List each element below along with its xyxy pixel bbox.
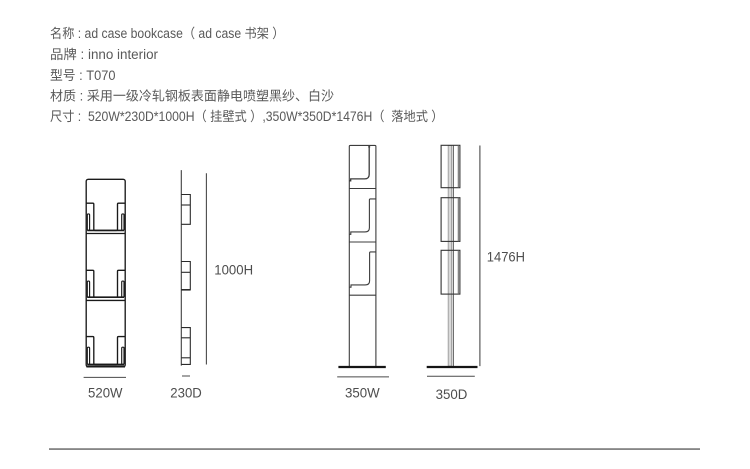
svg-text:230D: 230D [170,385,202,400]
svg-text:520W: 520W [88,385,123,400]
svg-text:350D: 350D [436,387,468,402]
svg-text:材质 : 采用一级冷轧钢板表面静电喷塑黑纱、白沙: 材质 : 采用一级冷轧钢板表面静电喷塑黑纱、白沙 [50,89,334,104]
svg-text:1000H: 1000H [214,262,253,277]
svg-text:名称 : ad case bookcase（ ad case: 名称 : ad case bookcase（ ad case 书架 ） [50,26,285,41]
svg-text:品牌 : inno interior: 品牌 : inno interior [50,47,159,62]
svg-text:尺寸 : 520W*230D*1000H（ 挂壁式 ）,3: 尺寸 : 520W*230D*1000H（ 挂壁式 ）,350W*350D*14… [50,109,444,124]
svg-text:型号 : T070: 型号 : T070 [50,68,116,83]
svg-text:350W: 350W [345,386,380,401]
svg-text:1476H: 1476H [487,250,525,265]
